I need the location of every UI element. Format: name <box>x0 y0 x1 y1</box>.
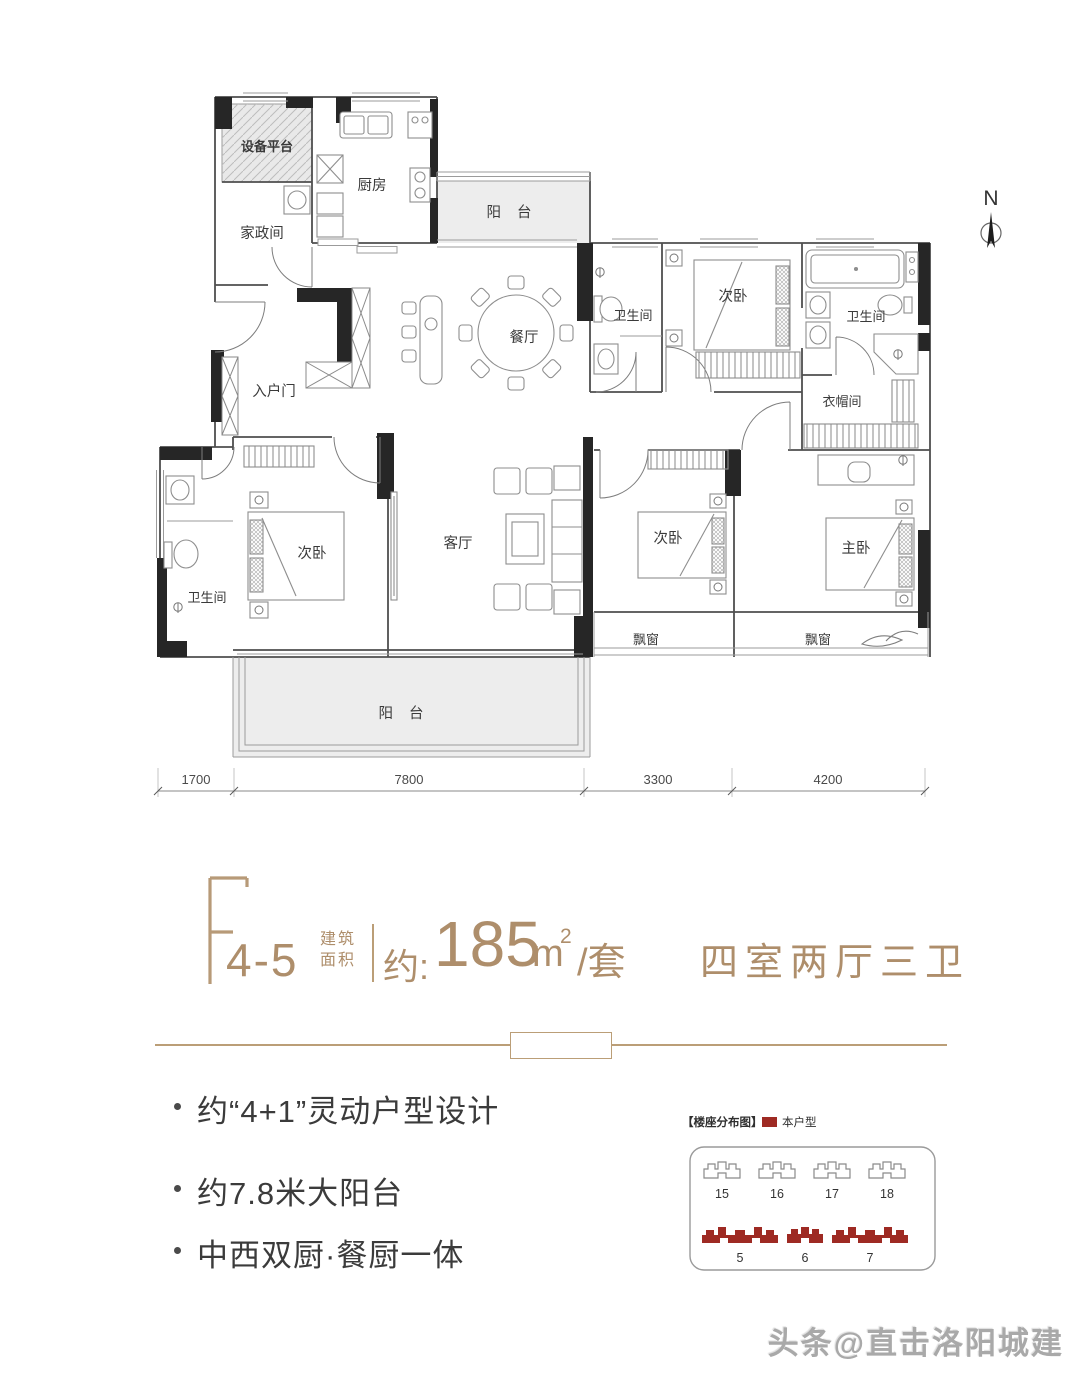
dim-7800: 7800 <box>395 772 424 787</box>
area-suffix: /套 <box>577 931 626 986</box>
layout-summary: 四室两厅三卫 <box>700 931 970 986</box>
bullet-icon <box>174 1247 181 1254</box>
label-bath-top-middle: 卫生间 <box>613 308 652 323</box>
area-prefix: 约: <box>383 938 429 990</box>
area-unit: m <box>532 933 564 976</box>
distribution-building-labels: 15 16 17 18 5 6 7 <box>715 1187 894 1265</box>
dim-3300: 3300 <box>644 772 673 787</box>
label-bedroom-left: 次卧 <box>298 545 327 562</box>
label-living-room: 客厅 <box>444 535 473 552</box>
label-bath-left: 卫生间 <box>187 590 226 605</box>
building-7: 7 <box>867 1251 874 1265</box>
feature-item-3: 中西双厨·餐厨一体 <box>174 1230 464 1275</box>
label-bay-window-left: 飘窗 <box>633 632 659 647</box>
section-divider-ornament <box>510 1032 612 1059</box>
label-entry-door: 入户门 <box>252 383 296 400</box>
area-unit-superscript: 2 <box>560 925 572 949</box>
building-6: 6 <box>802 1251 809 1265</box>
watermark: 头条@直击洛阳城建 <box>768 1318 1064 1363</box>
label-bath-top-right: 卫生间 <box>846 309 885 324</box>
label-master-bedroom: 主卧 <box>842 540 871 557</box>
label-bedroom-middle: 次卧 <box>654 530 683 547</box>
label-bay-window-right: 飘窗 <box>805 632 831 647</box>
distribution-title: 【楼座分布图】 <box>682 1114 763 1130</box>
feature-item-1: 约“4+1”灵动户型设计 <box>174 1086 499 1131</box>
label-dining: 餐厅 <box>510 329 539 346</box>
distribution-diagram: 15 16 17 18 5 6 7 <box>690 1147 935 1270</box>
label-cloakroom: 衣帽间 <box>822 394 861 409</box>
highlight-legend-icon <box>762 1117 777 1127</box>
bullet-icon <box>174 1185 181 1192</box>
page: 设备平台 家政间 厨房 阳 台 餐厅 卫生间 次卧 卫生间 衣帽间 入户门 次卧… <box>0 0 1080 1377</box>
north-label: N <box>983 187 998 210</box>
feature-text-3: 中西双厨·餐厨一体 <box>197 1230 464 1275</box>
area-label: 建筑 面积 <box>320 929 356 971</box>
label-housekeeping: 家政间 <box>240 225 284 242</box>
building-18: 18 <box>880 1187 894 1201</box>
area-label-top: 建筑 <box>320 929 356 950</box>
label-balcony-top: 阳 台 <box>486 204 537 221</box>
unit-code-number: 4-5 <box>226 933 298 987</box>
feature-item-2: 约7.8米大阳台 <box>174 1168 403 1213</box>
area-value: 185 <box>434 912 541 976</box>
area-label-divider <box>372 924 374 982</box>
label-kitchen: 厨房 <box>358 177 387 194</box>
bullet-icon <box>174 1103 181 1110</box>
distribution-legend-label: 本户型 <box>782 1114 817 1130</box>
floor-plan: 设备平台 家政间 厨房 阳 台 餐厅 卫生间 次卧 卫生间 衣帽间 入户门 次卧… <box>0 0 1080 1377</box>
building-15: 15 <box>715 1187 729 1201</box>
dim-1700: 1700 <box>182 772 211 787</box>
distribution-buildings-outline <box>704 1162 905 1178</box>
building-17: 17 <box>825 1187 839 1201</box>
gray-areas <box>222 104 590 757</box>
dimension-labels: 1700 7800 3300 4200 <box>182 772 843 787</box>
feature-text-1: 约“4+1”灵动户型设计 <box>197 1086 499 1131</box>
feature-text-2: 约7.8米大阳台 <box>197 1168 403 1213</box>
building-16: 16 <box>770 1187 784 1201</box>
dim-4200: 4200 <box>814 772 843 787</box>
label-balcony-bottom: 阳 台 <box>378 705 429 722</box>
label-equipment-platform: 设备平台 <box>241 139 293 154</box>
distribution-buildings-highlight <box>702 1227 908 1243</box>
building-5: 5 <box>737 1251 744 1265</box>
area-label-bottom: 面积 <box>320 950 356 971</box>
north-arrow-icon: N <box>981 187 1001 248</box>
label-bedroom-top: 次卧 <box>719 288 748 305</box>
